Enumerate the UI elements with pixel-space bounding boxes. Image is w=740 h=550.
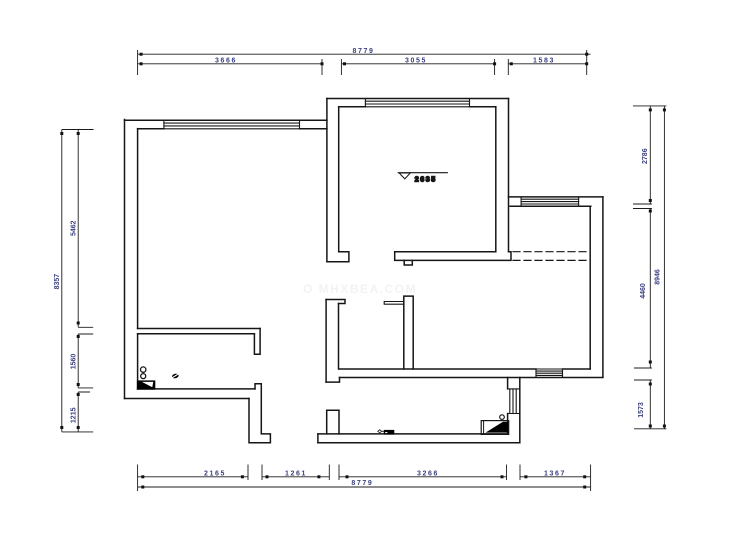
svg-text:8946: 8946 — [655, 269, 662, 285]
svg-text:2786: 2786 — [642, 148, 649, 164]
svg-text:3055: 3055 — [405, 57, 427, 64]
svg-text:2635: 2635 — [415, 177, 437, 184]
svg-text:2165: 2165 — [204, 470, 226, 477]
svg-text:4460: 4460 — [640, 283, 647, 299]
svg-text:1573: 1573 — [638, 402, 645, 418]
svg-text:3666: 3666 — [215, 57, 237, 64]
svg-text:1583: 1583 — [533, 57, 555, 64]
svg-text:5462: 5462 — [71, 220, 78, 236]
svg-text:8779: 8779 — [353, 48, 375, 55]
svg-text:1215: 1215 — [71, 407, 78, 423]
svg-text:O MHXBEA.COM: O MHXBEA.COM — [303, 282, 417, 296]
svg-text:1367: 1367 — [544, 470, 566, 477]
svg-text:8779: 8779 — [351, 480, 373, 487]
svg-text:8357: 8357 — [54, 274, 61, 290]
svg-text:3266: 3266 — [417, 470, 439, 477]
svg-text:1261: 1261 — [285, 470, 307, 477]
svg-text:1560: 1560 — [71, 354, 78, 370]
